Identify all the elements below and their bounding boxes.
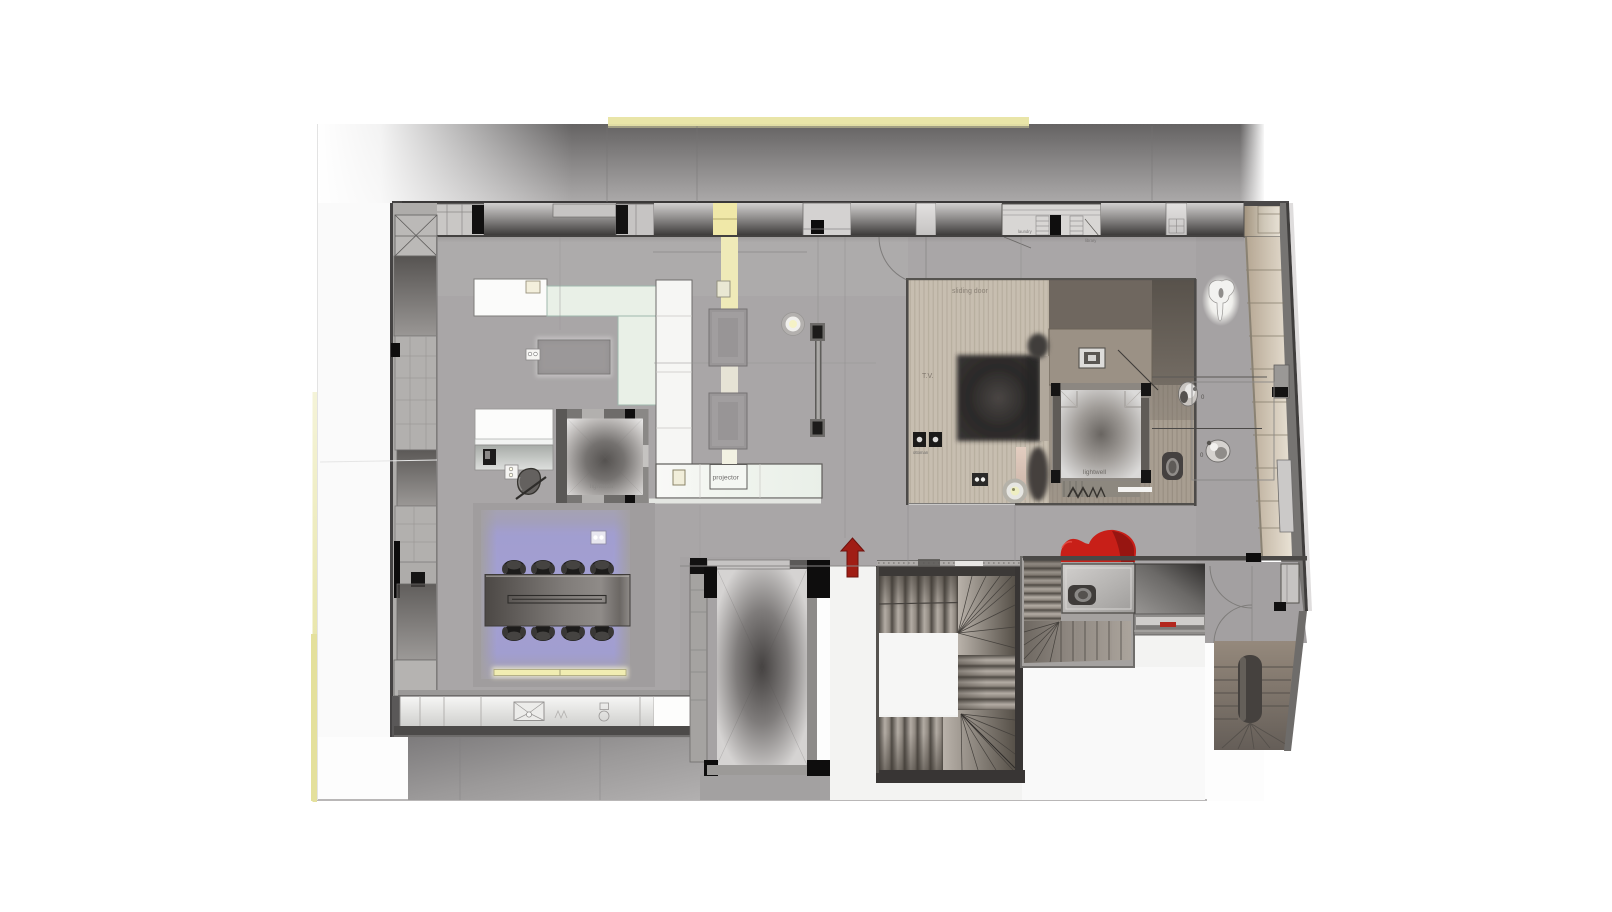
svg-text:T.V.: T.V.	[922, 373, 933, 380]
svg-text:lightwell: lightwell	[590, 483, 614, 490]
svg-text:lightwell: lightwell	[1083, 469, 1107, 476]
svg-text:projector: projector	[713, 475, 740, 482]
svg-text:laundry: laundry	[1018, 229, 1033, 234]
svg-text:sliding door: sliding door	[952, 288, 988, 295]
svg-text:ottoman: ottoman	[913, 450, 929, 455]
